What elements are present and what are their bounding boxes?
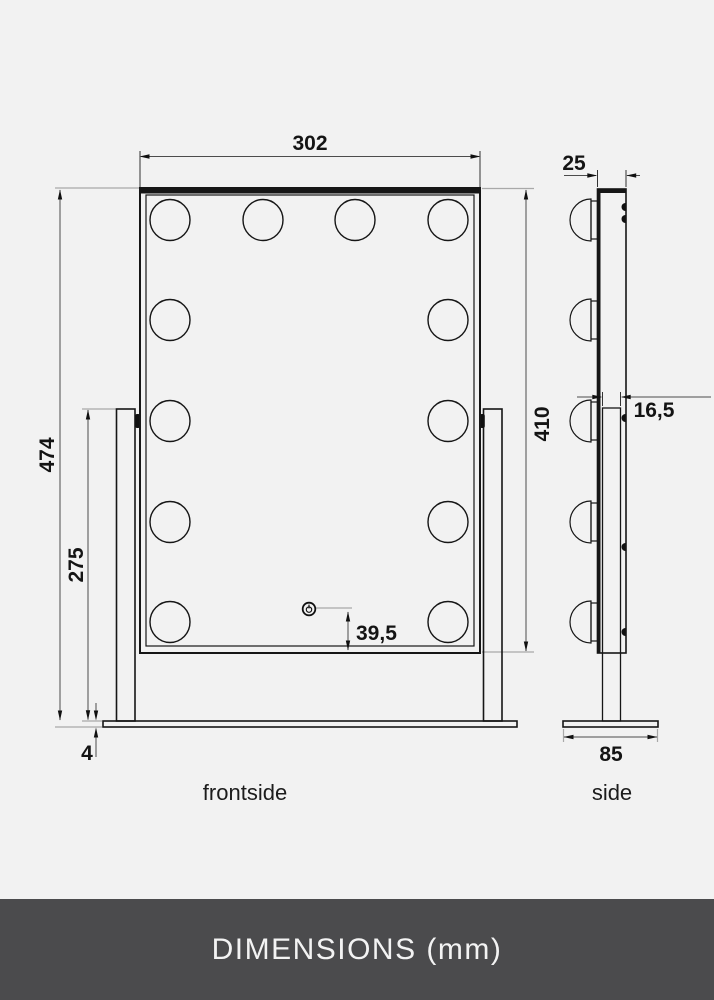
bulb-icon [591,201,598,239]
title-bar-label: DIMENSIONS (mm) [212,933,503,967]
dim-button-offset: 39,5 [346,612,397,651]
back-fittings [622,203,626,636]
dim-stand-thickness-label: 16,5 [634,399,675,422]
drawing-stage: 302 474 275 410 25 16,5 [0,0,714,899]
side-view-label: side [592,780,632,805]
bulb-icon [335,200,375,241]
bulb-icon [428,300,468,341]
bulb-icon [570,299,591,341]
dim-stand-height: 275 [65,410,90,721]
bulb-icon [591,503,598,541]
bulb-icon [428,200,468,241]
front-view-label: frontside [203,780,287,805]
side-base [563,721,658,727]
bulb-icon [243,200,283,241]
mirror-frame-inner [146,195,474,646]
power-icon [303,603,316,616]
mirror-frame-outer [140,188,480,653]
bulb-icon [150,502,190,543]
side-panel [598,189,627,653]
bulb-icon [591,402,598,440]
dim-base-thickness-label: 4 [81,742,93,765]
bulb-icon [150,200,190,241]
dim-button-offset-label: 39,5 [356,622,397,645]
dim-base-depth: 85 [564,735,658,766]
extension-lines [55,188,658,742]
front-view [103,188,517,727]
side-view [563,189,658,727]
bulb-icon [150,401,190,442]
bulb-icon [591,603,598,641]
dim-mirror-width: 302 [140,132,481,187]
bulb-icon [570,199,591,241]
front-left-stand [117,409,136,721]
bulb-icon [591,301,598,339]
bulb-icon [150,602,190,643]
bulb-icon [570,501,591,543]
front-right-stand [484,409,503,721]
dim-stand-height-label: 275 [65,547,88,582]
bulb-icon [428,602,468,643]
side-bulbs [570,199,598,643]
title-bar: DIMENSIONS (mm) [0,899,714,1000]
dim-mirror-height: 410 [524,190,554,652]
dim-base-depth-label: 85 [599,743,623,766]
bulb-icon [428,401,468,442]
technical-drawing: 302 474 275 410 25 16,5 [0,0,714,899]
dim-depth-label: 25 [562,152,586,175]
bulb-icon [570,400,591,442]
bulb-grid [150,200,468,643]
bulb-icon [570,601,591,643]
dim-mirror-height-label: 410 [531,406,554,441]
front-base [103,721,517,727]
dim-total-height: 474 [36,190,62,721]
dim-total-height-label: 474 [36,437,59,472]
dim-mirror-width-label: 302 [292,132,327,155]
bulb-icon [150,300,190,341]
side-stand [603,408,621,721]
dim-depth: 25 [562,152,640,187]
bulb-icon [428,502,468,543]
